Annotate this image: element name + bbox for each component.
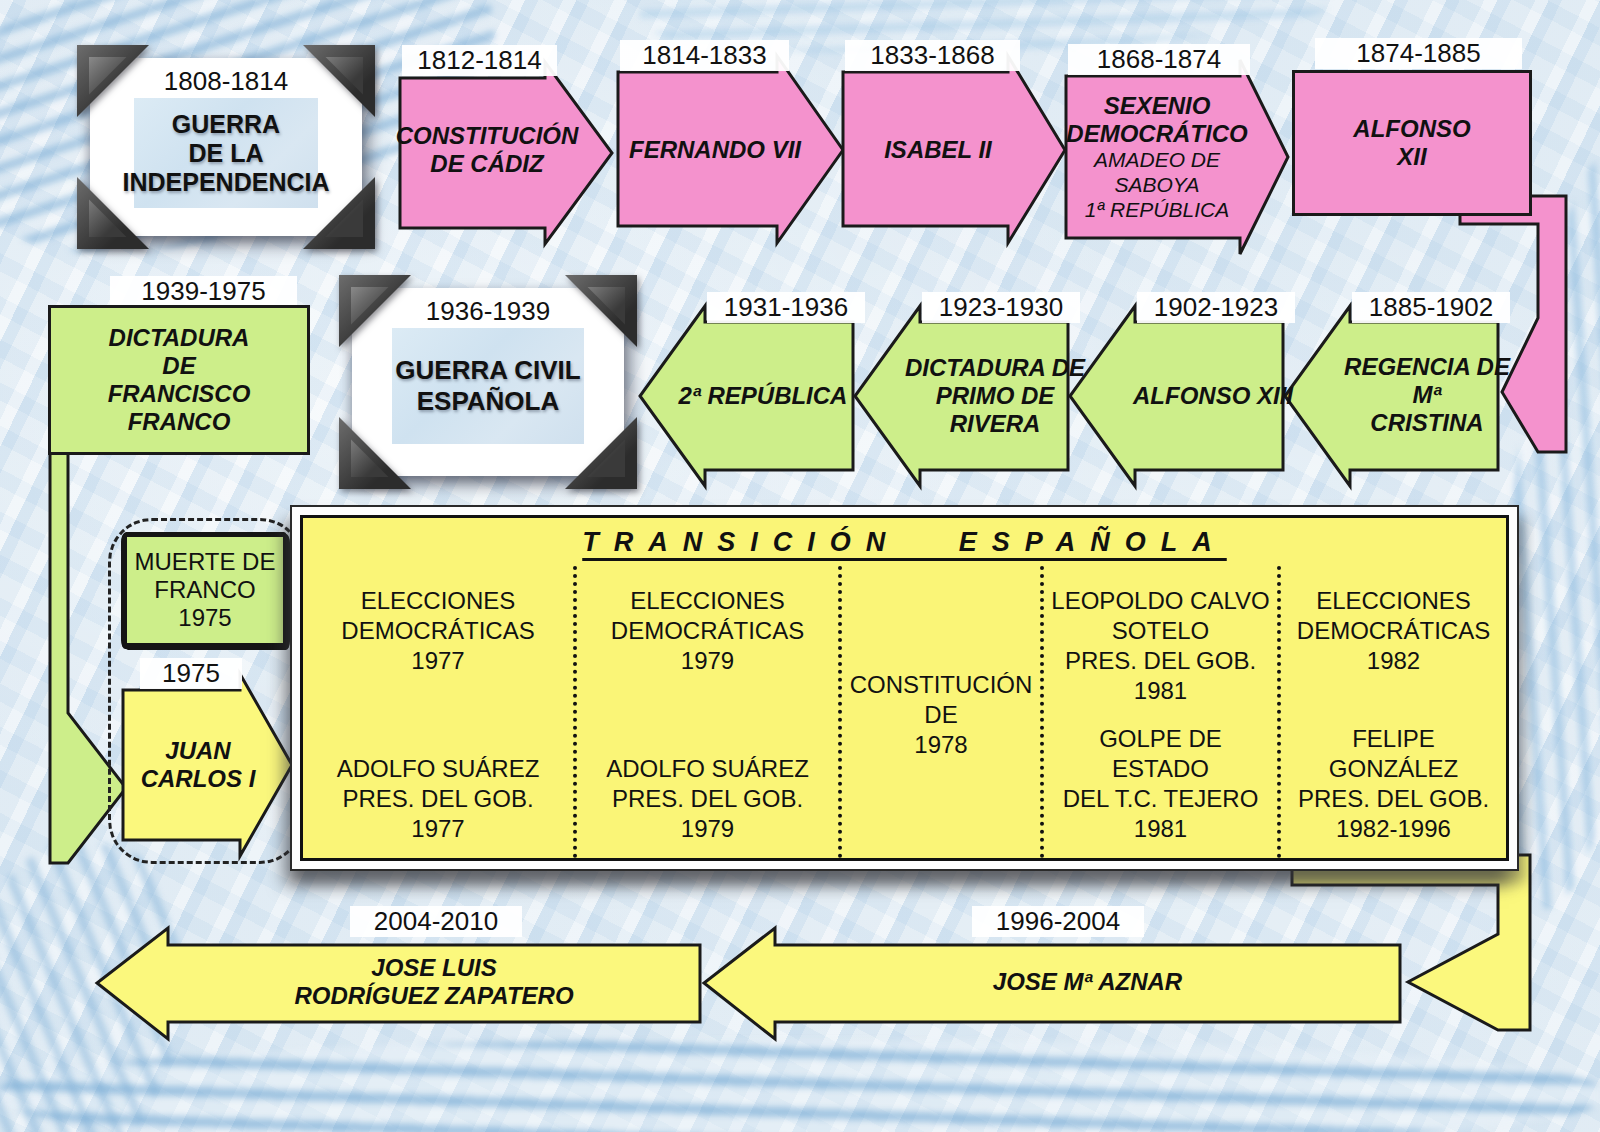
transicion-columns: ELECCIONES DEMOCRÁTICAS 1977 ADOLFO SUÁR… (303, 566, 1506, 858)
transicion-column-1982: ELECCIONES DEMOCRÁTICAS 1982 FELIPE GONZ… (1281, 566, 1506, 858)
transicion-inner: TRANSICIÓN ESPAÑOLA ELECCIONES DEMOCRÁTI… (300, 515, 1509, 861)
arrow-label-primo-rivera: DICTADURA DE PRIMO DE RIVERA (900, 350, 1090, 442)
frame-title: GUERRA CIVIL ESPAÑOLA (392, 328, 584, 444)
arrow-label-regencia: REGENCIA DE Mª CRISTINA (1332, 364, 1522, 426)
transicion-column-1979: ELECCIONES DEMOCRÁTICAS 1979 ADOLFO SUÁR… (577, 566, 842, 858)
photo-corner-icon (303, 177, 375, 249)
date-label: 1868-1874 (1068, 44, 1250, 75)
photo-frame-guerra-independencia: 1808-1814 GUERRA DE LA INDEPENDENCIA (90, 58, 362, 236)
column-top-text: ELECCIONES DEMOCRÁTICAS 1977 (307, 586, 569, 676)
date-label: 1931-1936 (707, 292, 865, 323)
photo-frame-guerra-civil: 1936-1939 GUERRA CIVIL ESPAÑOLA (352, 288, 624, 476)
transicion-espanola-panel: TRANSICIÓN ESPAÑOLA ELECCIONES DEMOCRÁTI… (290, 505, 1519, 871)
photo-corner-icon (303, 45, 375, 117)
photo-corner-icon (565, 275, 637, 347)
photo-corner-icon (77, 45, 149, 117)
date-label: 1833-1868 (845, 40, 1020, 71)
arrow-label-fernando-vii: FERNANDO VII (615, 134, 815, 166)
date-label: 1902-1923 (1137, 292, 1295, 323)
arrow-label-juan-carlos: JUAN CARLOS I (123, 733, 273, 797)
sexenio-main-label: SEXENIO DEMOCRÁTICO (1066, 92, 1247, 149)
date-label: 1814-1833 (620, 40, 789, 71)
transicion-column-1981: LEOPOLDO CALVO SOTELO PRES. DEL GOB. 198… (1044, 566, 1281, 858)
photo-corner-icon (339, 417, 411, 489)
column-bottom-text: ADOLFO SUÁREZ PRES. DEL GOB. 1977 (307, 754, 569, 844)
arrow-label-zapatero: JOSE LUIS RODRÍGUEZ ZAPATERO (168, 950, 700, 1014)
arrow-label-aznar: JOSE Mª AZNAR (775, 966, 1400, 998)
transicion-column-1977: ELECCIONES DEMOCRÁTICAS 1977 ADOLFO SUÁR… (303, 566, 577, 858)
arrow-label-constitucion: CONSTITUCIÓN DE CÁDIZ (392, 118, 582, 182)
date-label: 1812-1814 (402, 45, 557, 76)
photo-corner-icon (565, 417, 637, 489)
transicion-title: TRANSICIÓN ESPAÑOLA (303, 518, 1506, 566)
frame-title: GUERRA DE LA INDEPENDENCIA (134, 98, 318, 208)
sexenio-sub-label: AMADEO DE SABOYA 1ª REPÚBLICA (1085, 148, 1229, 222)
photo-corner-icon (339, 275, 411, 347)
date-label: 1939-1975 (110, 276, 297, 307)
box-dictadura-franco: DICTADURA DE FRANCISCO FRANCO (48, 305, 310, 455)
box-alfonso-xii: ALFONSO XII (1292, 70, 1532, 216)
arrow-label-alfonso-xiii: ALFONSO XIII (1118, 380, 1308, 412)
arrow-label-isabel-ii: ISABEL II (843, 134, 1033, 166)
column-middle-text: CONSTITUCIÓN DE 1978 (846, 670, 1036, 760)
date-label: 1996-2004 (972, 906, 1144, 937)
date-label: 1874-1885 (1315, 38, 1522, 69)
date-label: 1923-1930 (922, 292, 1080, 323)
timeline-diagram: 1808-1814 GUERRA DE LA INDEPENDENCIA 193… (0, 0, 1600, 1132)
date-label: 2004-2010 (350, 906, 522, 937)
column-top-text: LEOPOLDO CALVO SOTELO PRES. DEL GOB. 198… (1048, 586, 1273, 706)
photo-corner-icon (77, 177, 149, 249)
transicion-column-1978: CONSTITUCIÓN DE 1978 (842, 566, 1044, 858)
column-top-text: ELECCIONES DEMOCRÁTICAS 1982 (1285, 586, 1502, 676)
column-top-text: ELECCIONES DEMOCRÁTICAS 1979 (581, 586, 834, 676)
date-label: 1975 (140, 658, 242, 689)
column-bottom-text: GOLPE DE ESTADO DEL T.C. TEJERO 1981 (1048, 724, 1273, 844)
date-label: 1885-1902 (1352, 292, 1510, 323)
column-bottom-text: FELIPE GONZÁLEZ PRES. DEL GOB. 1982-1996 (1285, 724, 1502, 844)
arrow-label-2a-republica: 2ª REPÚBLICA (668, 380, 858, 412)
box-muerte-de-franco: MUERTE DE FRANCO 1975 (122, 532, 288, 648)
column-bottom-text: ADOLFO SUÁREZ PRES. DEL GOB. 1979 (581, 754, 834, 844)
arrow-label-sexenio: SEXENIO DEMOCRÁTICO AMADEO DE SABOYA 1ª … (1062, 92, 1252, 222)
